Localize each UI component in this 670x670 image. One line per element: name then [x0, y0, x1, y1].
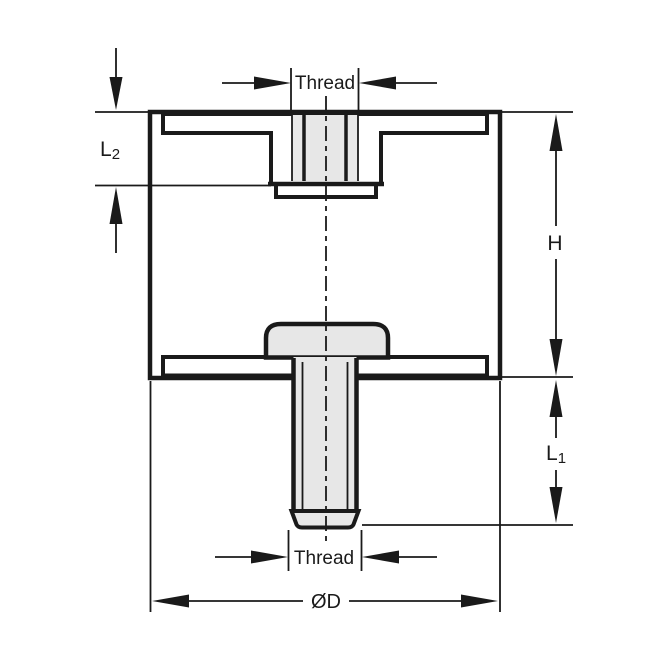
- l1-label: L1: [546, 442, 566, 467]
- thread-top-label: Thread: [295, 73, 355, 94]
- arrowhead-right-icon: [461, 595, 498, 608]
- technical-drawing-page: Thread L2 H L1 Thread: [0, 0, 670, 670]
- h-label: H: [547, 232, 562, 255]
- bottom-plate-and-stud: [163, 324, 487, 528]
- arrowhead-right-icon: [254, 77, 291, 90]
- dim-l2: L2: [95, 48, 271, 253]
- shaft-chamfer-tip: [292, 511, 359, 528]
- dim-h: H: [502, 112, 573, 377]
- bore-cavity: [292, 115, 358, 181]
- arrowhead-left-icon: [152, 595, 189, 608]
- arrowhead-right-icon: [251, 551, 288, 564]
- arrowhead-down-icon: [550, 487, 563, 523]
- arrowhead-up-icon: [110, 187, 123, 224]
- dim-thread-top: Thread: [222, 68, 437, 110]
- top-thread-insert: [163, 114, 487, 197]
- arrowhead-left-icon: [362, 551, 399, 564]
- technical-drawing-canvas: Thread L2 H L1 Thread: [0, 0, 670, 670]
- l2-label: L2: [100, 138, 120, 163]
- thread-bottom-label: Thread: [294, 548, 354, 569]
- arrowhead-up-icon: [550, 114, 563, 151]
- stud-shaft: [292, 357, 359, 528]
- arrowhead-down-icon: [550, 339, 563, 376]
- stud-head: [266, 324, 388, 358]
- diameter-label: ØD: [311, 591, 341, 613]
- arrowhead-left-icon: [359, 77, 396, 90]
- arrowhead-up-icon: [550, 380, 563, 417]
- dim-l1: L1: [362, 380, 573, 525]
- arrowhead-down-icon: [110, 77, 123, 110]
